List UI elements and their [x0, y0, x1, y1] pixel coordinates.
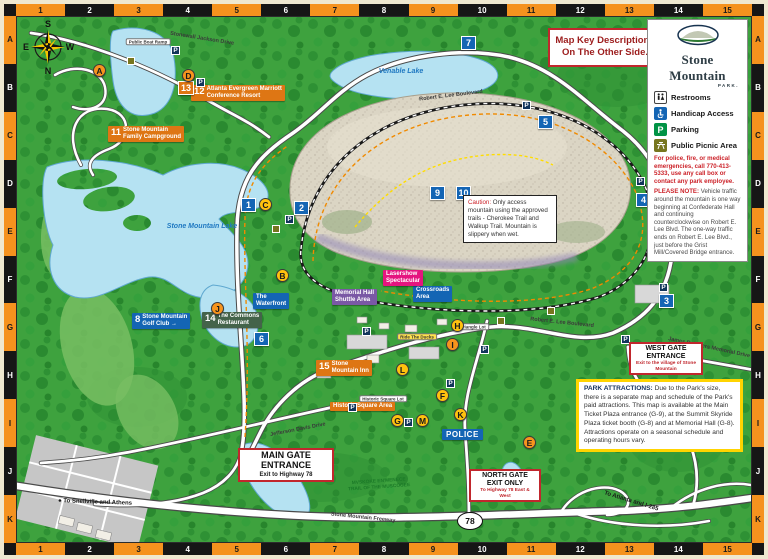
place-label-lasershow: LasershowSpectacular [383, 270, 423, 286]
map-text-label: Ride The Ducks [397, 333, 437, 340]
place-label-text: TheWaterfront [256, 294, 286, 308]
grid-band-bottom: 123456789101112131415 [16, 543, 752, 555]
grid-cell-12: 12 [556, 4, 605, 16]
place-label-the: TheWaterfront [253, 293, 289, 309]
grid-cell-G: G [752, 303, 764, 351]
grid-cell-E: E [4, 208, 16, 256]
grid-cell-7: 7 [310, 4, 359, 16]
parking-icon: P [480, 345, 489, 354]
legend-item-handicap-access: Handicap Access [654, 107, 741, 120]
grid-cell-A: A [4, 16, 16, 64]
grid-cell-15: 15 [703, 4, 752, 16]
grid-corner [4, 543, 16, 555]
legend-item-public-picnic-area: Public Picnic Area [654, 139, 741, 152]
parking-icon: P [659, 283, 668, 292]
grid-cell-3: 3 [114, 4, 163, 16]
letter-marker-G: G [391, 414, 404, 427]
traffic-note: PLEASE NOTE: Vehicle traffic around the … [654, 188, 741, 256]
grid-cell-6: 6 [261, 543, 310, 555]
place-label-text: Atlanta Evergreen MarriottConference Res… [207, 86, 282, 100]
main-gate-subtitle: Exit to Highway 78 [243, 472, 329, 479]
grid-cell-13: 13 [605, 543, 654, 555]
grid-cell-H: H [4, 351, 16, 399]
grid-cell-9: 9 [409, 543, 458, 555]
grid-cell-10: 10 [458, 4, 507, 16]
map-key-box: Map Key Descriptions On The Other Side. [548, 28, 662, 67]
grid-band-right: ABCDEFGHIJK [752, 16, 764, 543]
parking-icon: P [446, 379, 455, 388]
grid-cell-14: 14 [654, 543, 703, 555]
please-note-text: Vehicle traffic around the mountain is o… [654, 188, 740, 256]
grid-band-left: ABCDEFGHIJK [4, 16, 16, 543]
marker-1: 1 [241, 198, 256, 212]
parking-icon: P [362, 327, 371, 336]
grid-cell-D: D [4, 160, 16, 208]
highway-78-shield: 78 [457, 512, 483, 530]
park-map-page: 123456789101112131415 123456789101112131… [0, 0, 768, 559]
letter-marker-L: L [396, 363, 409, 376]
letter-marker-E: E [523, 436, 536, 449]
grid-cell-11: 11 [507, 543, 556, 555]
grid-cell-1: 1 [16, 543, 65, 555]
compass-south: S [45, 19, 51, 29]
logo-emblem-icon [676, 24, 720, 46]
grid-cell-9: 9 [409, 4, 458, 16]
picnic-icon [272, 225, 280, 233]
grid-cell-H: H [752, 351, 764, 399]
compass-north: N [45, 66, 52, 76]
caution-label: Caution: [468, 199, 491, 206]
compass-west: W [66, 42, 75, 52]
place-label-memorial-hall: Memorial HallShuttle Area [332, 289, 377, 305]
parking-icon: P [404, 418, 413, 427]
stone-mountain-logo: Stone Mountain PARK. [654, 24, 741, 88]
grid-cell-8: 8 [359, 4, 408, 16]
grid-cell-13: 13 [605, 4, 654, 16]
legend-panel: Stone Mountain PARK. RestroomsHandicap A… [647, 19, 748, 262]
grid-cell-2: 2 [65, 4, 114, 16]
place-number: 14 [205, 314, 216, 325]
north-gate-title: NORTH GATE EXIT ONLY [474, 472, 536, 487]
letter-marker-I: I [446, 338, 459, 351]
grid-cell-F: F [4, 256, 16, 304]
grid-cell-G: G [4, 303, 16, 351]
legend-item-parking: PParking [654, 123, 741, 136]
place-label-the-commons: 14The CommonsRestaurant [202, 312, 262, 328]
restrooms-icon [654, 91, 667, 104]
legend-item-label: Public Picnic Area [671, 141, 737, 150]
marker-7: 7 [461, 36, 476, 50]
grid-cell-10: 10 [458, 543, 507, 555]
grid-cell-11: 11 [507, 4, 556, 16]
grid-cell-J: J [752, 447, 764, 495]
legend-item-label: Parking [671, 125, 699, 134]
place-label-historic-square-area: Historic Square Area [330, 402, 395, 411]
grid-corner [4, 4, 16, 16]
letter-marker-H: H [451, 319, 464, 332]
grid-cell-J: J [4, 447, 16, 495]
letter-marker-F: F [436, 389, 449, 402]
marker-13: 13 [178, 81, 194, 95]
please-note-label: PLEASE NOTE: [654, 188, 699, 195]
grid-cell-E: E [752, 208, 764, 256]
grid-cell-F: F [752, 256, 764, 304]
place-label-text: POLICE [446, 430, 479, 439]
grid-cell-B: B [4, 64, 16, 112]
map-text-label: Venable Lake [379, 68, 424, 76]
parking-icon: P [522, 101, 531, 110]
picnic-icon [547, 307, 555, 315]
grid-cell-4: 4 [163, 4, 212, 16]
place-number: 12 [194, 87, 205, 98]
north-gate-subtitle: To Highway 78 East & West [474, 488, 536, 499]
place-label-stone-mountain: 11Stone MountainFamily Campground [108, 126, 184, 142]
place-label-text: StoneMountain Inn [332, 361, 369, 375]
place-label-atlanta-evergreen-marriott: 12Atlanta Evergreen MarriottConference R… [191, 85, 285, 101]
attractions-label: PARK ATTRACTIONS: [584, 385, 653, 392]
parking-icon: P [285, 215, 294, 224]
grid-cell-K: K [4, 495, 16, 543]
place-label-text: The CommonsRestaurant [218, 313, 260, 327]
grid-cell-6: 6 [261, 4, 310, 16]
park-attractions-box: PARK ATTRACTIONS: Due to the Park's size… [576, 379, 743, 452]
caution-box: Caution: Only access mountain using the … [463, 195, 557, 243]
letter-marker-B: B [276, 269, 289, 282]
attractions-text: Due to the Park's size, there is a separ… [584, 385, 735, 444]
place-number: 11 [111, 128, 121, 139]
legend-items: RestroomsHandicap AccessPParkingPublic P… [654, 91, 741, 152]
grid-corner [752, 543, 764, 555]
place-label-text: Memorial HallShuttle Area [335, 290, 374, 304]
grid-cell-D: D [752, 160, 764, 208]
marker-2: 2 [294, 201, 309, 215]
grid-cell-4: 4 [163, 543, 212, 555]
grid-band-top: 123456789101112131415 [16, 4, 752, 16]
north-gate-box: NORTH GATE EXIT ONLYTo Highway 78 East &… [469, 469, 541, 502]
picnic-icon [654, 139, 667, 152]
grid-corner [752, 4, 764, 16]
handicap-icon [654, 107, 667, 120]
grid-cell-I: I [4, 399, 16, 447]
parking-icon: P [654, 123, 667, 136]
place-label-text: CrossroadsArea [416, 287, 449, 301]
place-label-text: Stone MountainGolf Club → [142, 314, 187, 328]
place-number: 15 [319, 362, 330, 373]
letter-marker-A: A [93, 64, 106, 77]
letter-marker-J: J [211, 302, 224, 315]
west-gate-title: WEST GATE ENTRANCE [634, 345, 698, 360]
marker-9: 9 [430, 186, 445, 200]
map-text-label: Stone Mountain Lake [167, 223, 237, 231]
grid-cell-I: I [752, 399, 764, 447]
parking-icon: P [196, 78, 205, 87]
grid-cell-7: 7 [310, 543, 359, 555]
place-label-crossroads: CrossroadsArea [413, 286, 452, 302]
place-number: 8 [135, 315, 140, 326]
map-text-label: Public Boat Ramp [126, 38, 171, 45]
grid-cell-12: 12 [556, 543, 605, 555]
picnic-icon [127, 57, 135, 65]
grid-cell-5: 5 [212, 4, 261, 16]
parking-icon: P [171, 46, 180, 55]
parking-icon: P [348, 403, 357, 412]
letter-marker-K: K [454, 408, 467, 421]
main-gate-box: MAIN GATE ENTRANCEExit to Highway 78 [238, 448, 334, 482]
grid-cell-A: A [752, 16, 764, 64]
place-label-text: LasershowSpectacular [386, 271, 420, 285]
parking-icon: P [636, 177, 645, 186]
grid-cell-8: 8 [359, 543, 408, 555]
place-label-stone-mountain: 8Stone MountainGolf Club → [132, 313, 190, 329]
grid-cell-5: 5 [212, 543, 261, 555]
grid-cell-14: 14 [654, 4, 703, 16]
letter-marker-M: M [416, 414, 429, 427]
legend-item-restrooms: Restrooms [654, 91, 741, 104]
grid-cell-2: 2 [65, 543, 114, 555]
grid-cell-15: 15 [703, 543, 752, 555]
grid-cell-1: 1 [16, 4, 65, 16]
main-gate-title: MAIN GATE ENTRANCE [243, 451, 329, 471]
map-canvas: S E W N 78 Map Key Descriptions On The O… [16, 16, 752, 543]
grid-cell-3: 3 [114, 543, 163, 555]
grid-cell-C: C [752, 112, 764, 160]
letter-marker-D: D [182, 69, 195, 82]
west-gate-box: WEST GATE ENTRANCEExit to the village of… [629, 342, 703, 375]
marker-6: 6 [254, 332, 269, 346]
marker-3: 3 [659, 294, 674, 308]
picnic-icon [497, 317, 505, 325]
letter-marker-C: C [259, 198, 272, 211]
compass-east: E [23, 42, 29, 52]
legend-item-label: Restrooms [671, 93, 711, 102]
grid-cell-C: C [4, 112, 16, 160]
logo-title: Stone Mountain [654, 52, 741, 84]
place-label-text: Historic Square Area [333, 403, 392, 410]
grid-cell-B: B [752, 64, 764, 112]
place-label-text: Stone MountainFamily Campground [123, 127, 181, 141]
legend-item-label: Handicap Access [671, 109, 734, 118]
place-label-stone: 15StoneMountain Inn [316, 360, 372, 376]
emergency-note: For police, fire, or medical emergencies… [654, 155, 741, 185]
marker-5: 5 [538, 115, 553, 129]
place-label-police: POLICE [442, 429, 483, 440]
west-gate-subtitle: Exit to the village of Stone Mountain [634, 361, 698, 372]
grid-cell-K: K [752, 495, 764, 543]
